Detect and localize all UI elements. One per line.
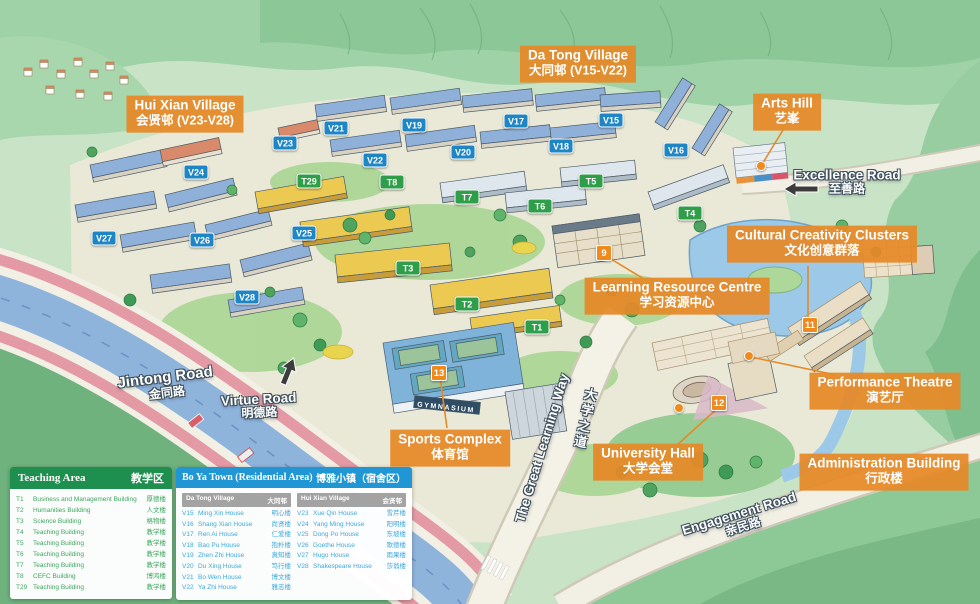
- house-code: V19: [182, 551, 198, 562]
- teaching-area-legend-header: Teaching Area 教学区: [10, 467, 172, 489]
- building-name-en: Teaching Building: [33, 549, 147, 560]
- teaching-area-title-cn: 教学区: [131, 470, 164, 486]
- marker-v16: V16: [664, 143, 689, 158]
- house-code: V15: [182, 509, 198, 520]
- marker-v19: V19: [402, 118, 427, 133]
- house-code: V20: [182, 562, 198, 573]
- house-name-cn: 雅志楼: [272, 583, 292, 594]
- house-name-en: Shang Xian House: [198, 520, 272, 531]
- house-name-en: Goethe House: [313, 541, 387, 552]
- building-name-cn: 教学楼: [147, 582, 167, 593]
- teaching-row-t4: T4Teaching Building教学楼: [16, 527, 166, 538]
- house-code: V18: [182, 541, 198, 552]
- house-name-cn: 博文楼: [272, 573, 292, 584]
- building-name-cn: 厚德楼: [147, 494, 167, 505]
- house-name-cn: 抱朴楼: [272, 541, 292, 552]
- house-row-v24: V24Yang Ming House阳明楼: [297, 520, 406, 531]
- village-name-cn: 会贤邨: [383, 495, 403, 505]
- building-name-cn: 教学楼: [147, 538, 167, 549]
- teaching-area-legend: Teaching Area 教学区 T1Business and Managem…: [10, 467, 172, 599]
- teaching-row-t29: T29Teaching Building教学楼: [16, 582, 166, 593]
- marker-v24: V24: [184, 165, 209, 180]
- house-code: V26: [297, 541, 313, 552]
- marker-t3: T3: [396, 261, 421, 276]
- marker-t29: T29: [297, 174, 322, 189]
- house-name-cn: 真知楼: [272, 551, 292, 562]
- building-name-cn: 格物楼: [147, 516, 167, 527]
- house-code: V24: [297, 520, 313, 531]
- house-row-v20: V20Du Xing House笃行楼: [182, 562, 291, 573]
- house-code: V21: [182, 573, 198, 584]
- house-code: V28: [297, 562, 313, 573]
- marker-11: 11: [802, 317, 818, 333]
- house-code: V25: [297, 530, 313, 541]
- marker-v27: V27: [92, 231, 117, 246]
- da-tong-village-label-cn: 大同邨 (V15-V22): [528, 64, 628, 79]
- hui-xian-village-label: Hui Xian Village会贤邨 (V23-V28): [126, 96, 243, 133]
- cultural-creativity-clusters-label-cn: 文化创意群落: [735, 244, 909, 259]
- marker-v22: V22: [363, 153, 388, 168]
- teaching-row-t8: T8CEFC Building博鸿楼: [16, 571, 166, 582]
- house-name-cn: 莎翁楼: [387, 562, 407, 573]
- marker-v21: V21: [324, 121, 349, 136]
- house-name-en: Xue Qin House: [313, 509, 387, 520]
- house-row-v28: V28Shakespeare House莎翁楼: [297, 562, 406, 573]
- building-name-cn: 教学楼: [147, 560, 167, 571]
- house-name-cn: 东坡楼: [387, 530, 407, 541]
- boya-town-columns: Da Tong Village大同邨V15Ming Xin House明心楼V1…: [176, 488, 412, 600]
- house-row-v16: V16Shang Xian House尚贤楼: [182, 520, 291, 531]
- building-name-en: Teaching Building: [33, 560, 147, 571]
- virtue-road-label: Virtue Road明德路: [221, 390, 298, 422]
- marker-12: 12: [711, 395, 727, 411]
- marker-t4: T4: [678, 206, 703, 221]
- house-code: V27: [297, 551, 313, 562]
- building-name-en: CEFC Building: [33, 571, 147, 582]
- excellence-road-label-en: Excellence Road: [793, 168, 900, 183]
- marker-v28: V28: [235, 290, 260, 305]
- house-name-cn: 雨果楼: [387, 551, 407, 562]
- hui-xian-village-label-en: Hui Xian Village: [134, 98, 235, 114]
- marker-9: 9: [596, 245, 612, 261]
- excellence-road-label-cn: 至善路: [793, 183, 900, 196]
- performance-theatre-label-cn: 演艺厅: [817, 391, 952, 406]
- cultural-creativity-clusters-label-en: Cultural Creativity Clusters: [735, 228, 909, 244]
- house-name-cn: 笃行楼: [272, 562, 292, 573]
- house-row-v22: V22Ya Zhi House雅志楼: [182, 583, 291, 594]
- administration-building-label-en: Administration Building: [808, 456, 961, 472]
- performance-theatre-label: Performance Theatre演艺厅: [809, 373, 960, 410]
- house-name-en: Du Xing House: [198, 562, 272, 573]
- administration-building-label: Administration Building行政楼: [800, 454, 969, 491]
- arts-hill-label-en: Arts Hill: [761, 96, 813, 112]
- marker-dot: [756, 161, 766, 171]
- marker-v17: V17: [504, 114, 529, 129]
- house-name-cn: 歌德楼: [387, 541, 407, 552]
- village-subheader: Hui Xian Village会贤邨: [297, 493, 406, 507]
- house-name-cn: 仁爱楼: [272, 530, 292, 541]
- teaching-area-rows: T1Business and Management Building厚德楼T2H…: [10, 489, 172, 599]
- arts-hill-label: Arts Hill艺峯: [753, 94, 821, 131]
- boya-town-title-cn: 博雅小镇（宿舍区）: [316, 470, 406, 485]
- building-name-cn: 人文楼: [147, 505, 167, 516]
- house-row-v15: V15Ming Xin House明心楼: [182, 509, 291, 520]
- teaching-row-t5: T5Teaching Building教学楼: [16, 538, 166, 549]
- building-code: T4: [16, 527, 33, 538]
- house-name-en: Ren Ai House: [198, 530, 272, 541]
- teaching-row-t7: T7Teaching Building教学楼: [16, 560, 166, 571]
- house-name-cn: 尚贤楼: [272, 520, 292, 531]
- teaching-row-t2: T2Humanities Building人文楼: [16, 505, 166, 516]
- marker-v15: V15: [599, 113, 624, 128]
- house-row-v25: V25Dong Po House东坡楼: [297, 530, 406, 541]
- house-name-cn: 明心楼: [272, 509, 292, 520]
- marker-dot: [744, 351, 754, 361]
- campus-map: Teaching Area 教学区 T1Business and Managem…: [0, 0, 980, 604]
- village-name-en: Hui Xian Village: [301, 495, 350, 505]
- house-row-v19: V19Zhen Zhi House真知楼: [182, 551, 291, 562]
- university-hall-label-en: University Hall: [601, 446, 695, 462]
- marker-v18: V18: [549, 139, 574, 154]
- administration-building-label-cn: 行政楼: [808, 472, 961, 487]
- house-code: V23: [297, 509, 313, 520]
- marker-dot: [674, 403, 684, 413]
- performance-theatre-label-en: Performance Theatre: [817, 375, 952, 391]
- building-code: T5: [16, 538, 33, 549]
- da-tong-village-label: Da Tong Village大同邨 (V15-V22): [520, 46, 636, 83]
- house-name-en: Bo Wen House: [198, 573, 272, 584]
- village-name-cn: 大同邨: [268, 495, 288, 505]
- boya-town-legend-header: Bo Ya Town (Residential Area) 博雅小镇（宿舍区）: [176, 467, 412, 488]
- teaching-area-title-en: Teaching Area: [18, 472, 86, 484]
- house-code: V17: [182, 530, 198, 541]
- university-hall-label: University Hall大学会堂: [593, 444, 703, 481]
- marker-t6: T6: [528, 199, 553, 214]
- house-code: V16: [182, 520, 198, 531]
- marker-v25: V25: [292, 226, 317, 241]
- house-name-en: Hugo House: [313, 551, 387, 562]
- building-name-cn: 教学楼: [147, 549, 167, 560]
- teaching-row-t6: T6Teaching Building教学楼: [16, 549, 166, 560]
- cultural-creativity-clusters-label: Cultural Creativity Clusters文化创意群落: [727, 226, 917, 263]
- building-code: T8: [16, 571, 33, 582]
- building-name-en: Teaching Building: [33, 527, 147, 538]
- teaching-row-t3: T3Science Building格物楼: [16, 516, 166, 527]
- house-row-v27: V27Hugo House雨果楼: [297, 551, 406, 562]
- excellence-road-label: Excellence Road至善路: [793, 168, 900, 197]
- university-hall-label-cn: 大学会堂: [601, 462, 695, 477]
- learning-resource-centre-label-cn: 学习资源中心: [593, 296, 762, 311]
- marker-t5: T5: [579, 174, 604, 189]
- village-name-en: Da Tong Village: [186, 495, 234, 505]
- marker-v23: V23: [273, 136, 298, 151]
- arts-hill-label-cn: 艺峯: [761, 112, 813, 127]
- sports-complex-label-en: Sports Complex: [398, 432, 502, 448]
- house-name-en: Shakespeare House: [313, 562, 387, 573]
- building-code: T3: [16, 516, 33, 527]
- house-name-en: Ming Xin House: [198, 509, 272, 520]
- sports-complex-label-cn: 体育馆: [398, 448, 502, 463]
- building-code: T7: [16, 560, 33, 571]
- boya-town-title-en: Bo Ya Town (Residential Area): [182, 472, 313, 483]
- building-code: T29: [16, 582, 33, 593]
- village-subheader: Da Tong Village大同邨: [182, 493, 291, 507]
- building-name-en: Humanities Building: [33, 505, 147, 516]
- boya-column-da-tong: Da Tong Village大同邨V15Ming Xin House明心楼V1…: [182, 493, 291, 594]
- house-row-v18: V18Bao Pu House抱朴楼: [182, 541, 291, 552]
- marker-t2: T2: [455, 297, 480, 312]
- house-name-en: Ya Zhi House: [198, 583, 272, 594]
- house-name-cn: 阳明楼: [387, 520, 407, 531]
- boya-column-hui-xian: Hui Xian Village会贤邨V23Xue Qin House雪芹楼V2…: [297, 493, 406, 594]
- house-row-v21: V21Bo Wen House博文楼: [182, 573, 291, 584]
- house-name-en: Yang Ming House: [313, 520, 387, 531]
- building-name-en: Science Building: [33, 516, 147, 527]
- marker-t1: T1: [525, 320, 550, 335]
- marker-t7: T7: [455, 190, 480, 205]
- house-row-v17: V17Ren Ai House仁爱楼: [182, 530, 291, 541]
- building-code: T1: [16, 494, 33, 505]
- house-name-cn: 雪芹楼: [387, 509, 407, 520]
- building-code: T2: [16, 505, 33, 516]
- house-row-v23: V23Xue Qin House雪芹楼: [297, 509, 406, 520]
- building-name-cn: 教学楼: [147, 527, 167, 538]
- house-row-v26: V26Goethe House歌德楼: [297, 541, 406, 552]
- sports-complex-label: Sports Complex体育馆: [390, 430, 510, 467]
- house-name-en: Zhen Zhi House: [198, 551, 272, 562]
- marker-v26: V26: [190, 233, 215, 248]
- marker-13: 13: [431, 365, 447, 381]
- building-name-cn: 博鸿楼: [147, 571, 167, 582]
- house-name-en: Bao Pu House: [198, 541, 272, 552]
- building-name-en: Teaching Building: [33, 582, 147, 593]
- boya-town-legend: Bo Ya Town (Residential Area) 博雅小镇（宿舍区） …: [176, 467, 412, 600]
- building-name-en: Business and Management Building: [33, 494, 147, 505]
- house-code: V22: [182, 583, 198, 594]
- teaching-row-t1: T1Business and Management Building厚德楼: [16, 494, 166, 505]
- learning-resource-centre-label-en: Learning Resource Centre: [593, 280, 762, 296]
- hui-xian-village-label-cn: 会贤邨 (V23-V28): [134, 114, 235, 129]
- marker-v20: V20: [451, 145, 476, 160]
- house-name-en: Dong Po House: [313, 530, 387, 541]
- da-tong-village-label-en: Da Tong Village: [528, 48, 628, 64]
- marker-t8: T8: [380, 175, 405, 190]
- learning-resource-centre-label: Learning Resource Centre学习资源中心: [585, 278, 770, 315]
- building-name-en: Teaching Building: [33, 538, 147, 549]
- building-code: T6: [16, 549, 33, 560]
